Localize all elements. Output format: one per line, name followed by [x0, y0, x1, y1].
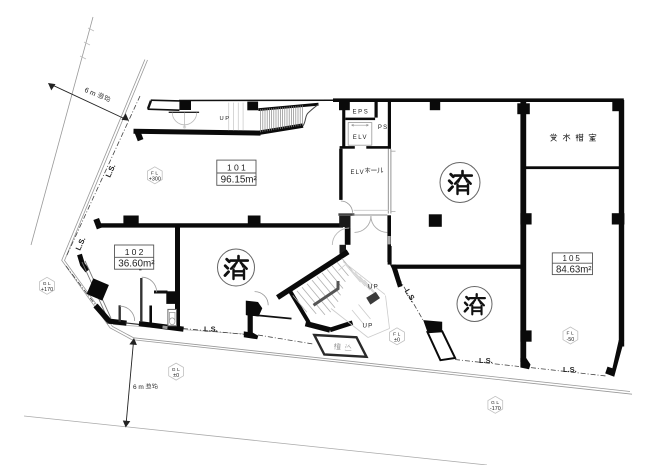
svg-text:102: 102: [125, 247, 146, 257]
svg-text:L.S.: L.S.: [479, 356, 493, 365]
svg-text:FL: FL: [566, 331, 575, 337]
svg-text:96.15m²: 96.15m²: [221, 175, 258, 186]
svg-text:FL: FL: [393, 332, 402, 338]
svg-text:GL: GL: [43, 281, 53, 287]
svg-text:101: 101: [227, 162, 248, 172]
svg-text:6 m: 6 m: [133, 384, 144, 391]
svg-text:UP: UP: [363, 323, 374, 330]
svg-text:±0: ±0: [173, 373, 179, 379]
svg-text:L.S.: L.S.: [204, 325, 218, 334]
svg-text:UP: UP: [368, 284, 379, 291]
svg-text:L.S.: L.S.: [563, 365, 577, 374]
svg-text:ELV: ELV: [351, 170, 365, 176]
svg-text:36.60m²: 36.60m²: [118, 258, 155, 269]
svg-text:+170: +170: [41, 287, 53, 293]
svg-text:PS: PS: [378, 125, 388, 131]
svg-text:EPS: EPS: [353, 110, 370, 116]
svg-text:FL: FL: [151, 171, 160, 177]
svg-text:UP: UP: [220, 116, 231, 122]
svg-text:-50: -50: [567, 337, 575, 343]
svg-text:GL: GL: [491, 400, 501, 406]
svg-text:GL: GL: [172, 367, 182, 373]
svg-text:ELV: ELV: [353, 135, 368, 141]
svg-text:±0: ±0: [394, 338, 400, 344]
svg-text:105: 105: [563, 254, 582, 263]
svg-text:84.63m²: 84.63m²: [556, 264, 592, 275]
svg-text:-170: -170: [490, 406, 501, 412]
svg-text:+300: +300: [149, 177, 161, 183]
